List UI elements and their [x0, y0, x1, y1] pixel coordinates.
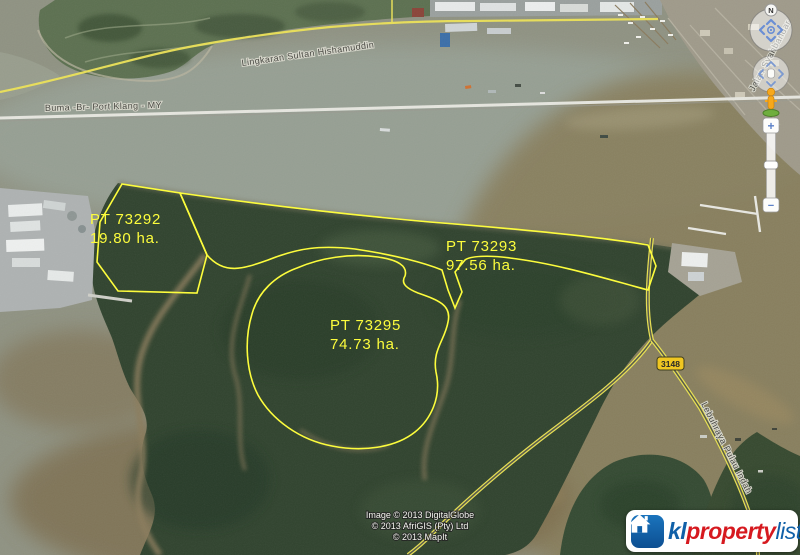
- klpropertylist-watermark: klpropertylist: [626, 510, 798, 552]
- watermark-list: list: [775, 518, 800, 544]
- north-label: N: [768, 6, 773, 15]
- watermark-property: property: [686, 518, 775, 544]
- watermark-kl: kl: [668, 518, 686, 544]
- zoom-in-label: +: [767, 119, 774, 133]
- pan-center-dot: [770, 29, 772, 31]
- look-around-control[interactable]: [753, 56, 789, 92]
- zoom-control[interactable]: + −: [763, 118, 779, 212]
- drag-hand-icon: [768, 69, 775, 78]
- zoom-out-label: −: [768, 200, 774, 212]
- attribution-line-2: © 2013 AfriGIS (Pty) Ltd: [372, 521, 469, 531]
- attribution-line-3: © 2013 MapIt: [393, 532, 448, 542]
- house-icon: [631, 515, 664, 548]
- attribution-line-1: Image © 2013 DigitalGlobe: [366, 510, 474, 520]
- satellite-map[interactable]: 3148 PT 73292 19.80 ha. PT 73293 97.56 h…: [0, 0, 800, 555]
- satellite-grain: [0, 0, 800, 555]
- zoom-slider-handle[interactable]: [764, 161, 778, 169]
- map-viewport[interactable]: 3148 PT 73292 19.80 ha. PT 73293 97.56 h…: [0, 0, 800, 555]
- watermark-text: klpropertylist: [668, 520, 800, 543]
